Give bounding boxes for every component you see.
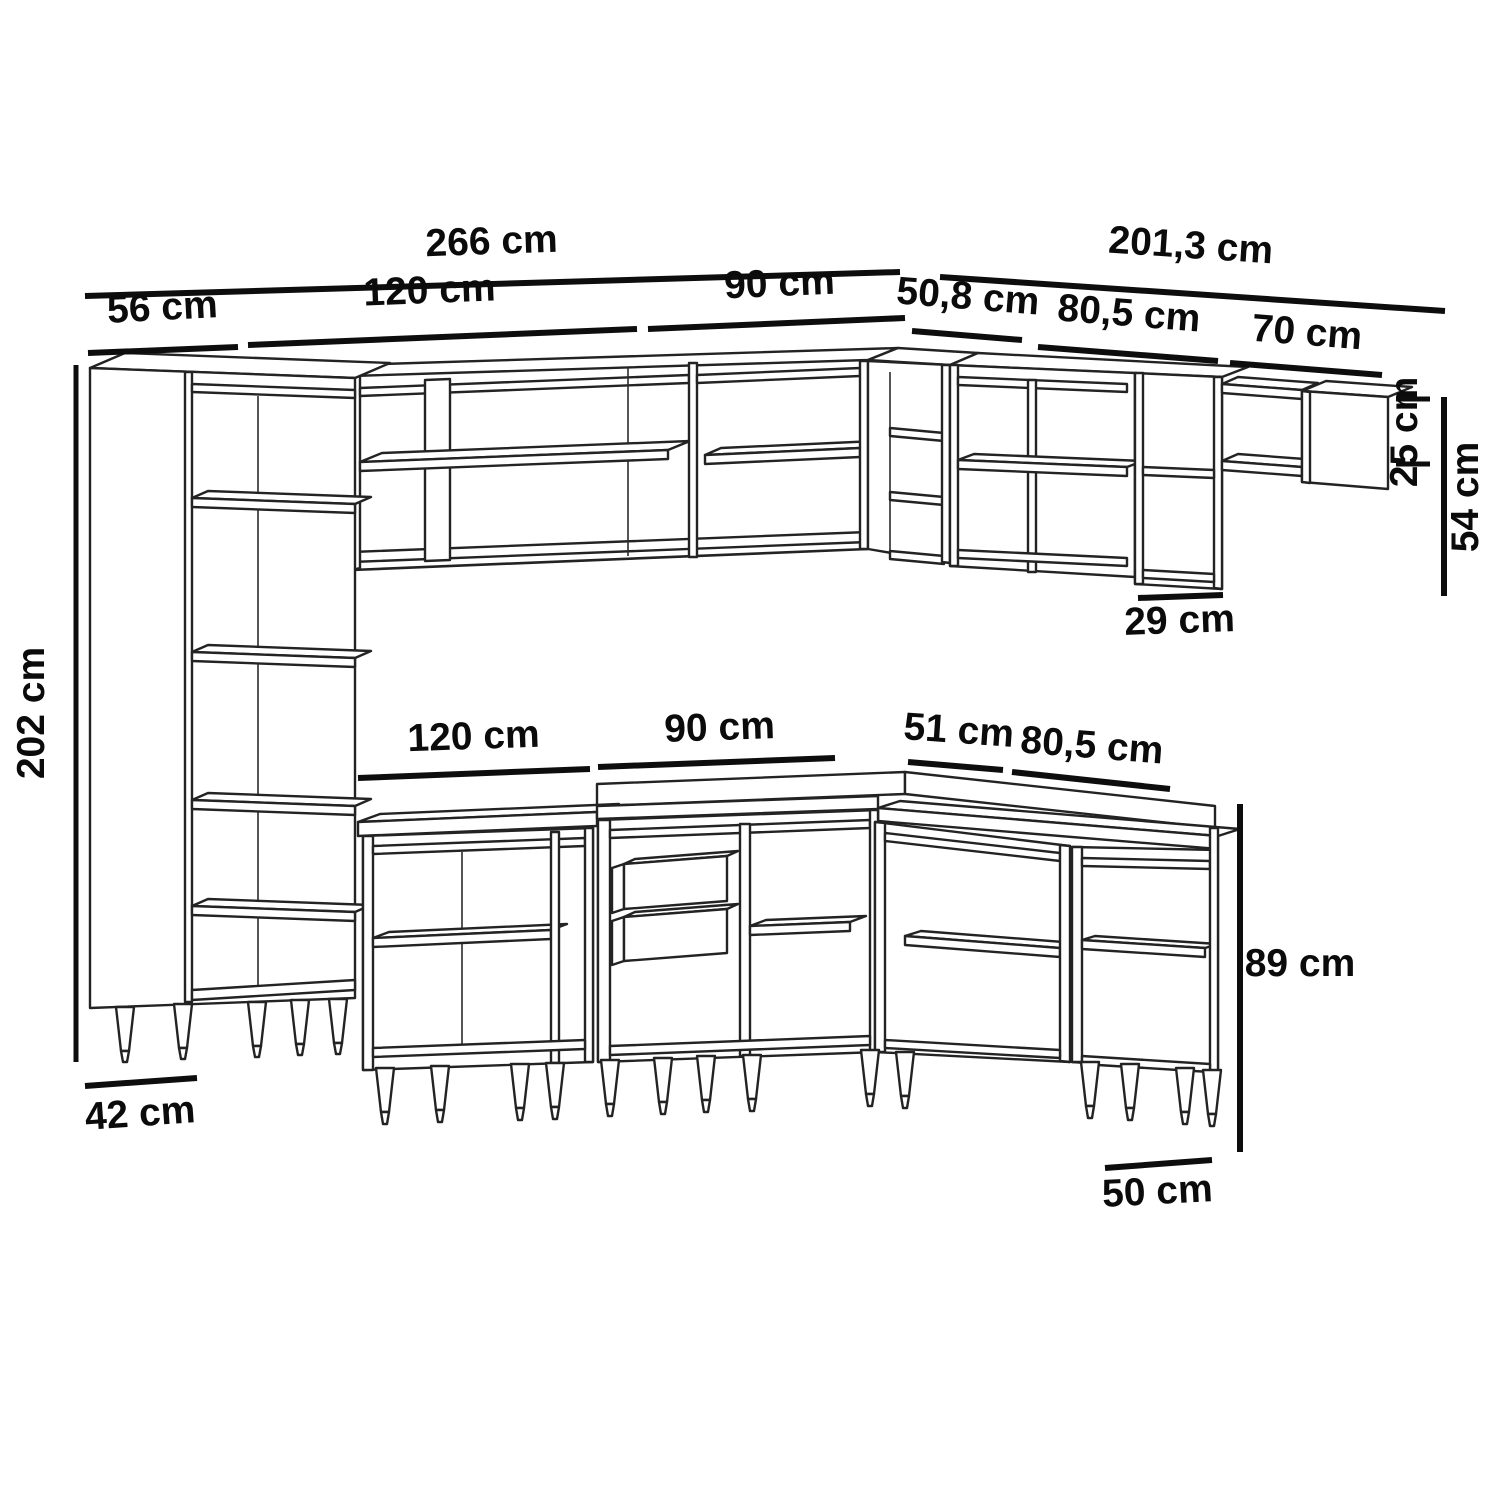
dim-label-54: 54 cm (1444, 442, 1487, 553)
wall-cabinet-90-top-strip (697, 368, 860, 383)
dim-line-50 (1105, 1160, 1212, 1168)
dim-label-70: 70 cm (1250, 307, 1364, 359)
diagram-canvas: 266 cm 56 cm 120 cm 90 cm 201,3 cm 50,8 … (0, 0, 1500, 1500)
wall-cabinet-120-top-strip (360, 375, 689, 396)
base-805-left-edge (1072, 847, 1082, 1062)
dim-label-90-mid: 90 cm (664, 704, 776, 751)
dim-label-42: 42 cm (83, 1088, 196, 1139)
dim-line-90-mid (598, 758, 835, 767)
wall-cabinet-29-front (1135, 373, 1222, 589)
dim-line-70 (1230, 363, 1382, 375)
wall-cabinet-120-divider (425, 379, 450, 561)
base-120-left-edge (363, 836, 373, 1070)
wall-corner-front (868, 361, 950, 563)
dim-line-90-top (648, 318, 905, 329)
base-120-divider (551, 832, 559, 1063)
dim-label-25: 25 cm (1383, 377, 1426, 488)
drawer-2-side (612, 917, 624, 965)
wall-cabinet-29-left-edge (1135, 373, 1143, 584)
dim-line-56 (88, 347, 238, 353)
base-51-right-edge (1060, 845, 1070, 1062)
base-cabinet-90 (598, 810, 878, 1062)
base-cabinet-120 (363, 828, 593, 1070)
base-cabinet-corner-51 (875, 822, 1076, 1062)
open-shelf-70-endbox-front (1302, 391, 1388, 489)
drawer-2-front (624, 909, 727, 961)
dim-line-42 (85, 1078, 197, 1086)
dim-label-508: 50,8 cm (895, 269, 1041, 323)
wall-cabinet-805-divider (1028, 380, 1036, 572)
dim-label-51: 51 cm (902, 705, 1015, 756)
dim-label-90-top: 90 cm (723, 260, 835, 308)
open-shelf-70-endbox-edge (1302, 391, 1310, 483)
base-90-left-edge (598, 820, 610, 1062)
drawer-1-front (624, 856, 727, 909)
dim-label-120-top: 120 cm (363, 266, 497, 314)
wall-cabinet-120-right-edge (689, 363, 697, 557)
drawer-1-side (612, 864, 624, 913)
dim-line-120-top (248, 329, 637, 345)
base-805-right-edge (1210, 828, 1218, 1072)
dim-label-266: 266 cm (425, 218, 559, 266)
dim-label-56: 56 cm (106, 283, 219, 332)
wall-cabinets-left-run (352, 348, 898, 570)
dim-label-120-mid: 120 cm (407, 713, 541, 761)
kitchen-cabinet-dimension-diagram: 266 cm 56 cm 120 cm 90 cm 201,3 cm 50,8 … (0, 0, 1500, 1500)
dim-label-805-mid: 80,5 cm (1019, 718, 1165, 772)
wall-cabinet-29-shelf (1143, 467, 1214, 478)
dim-label-89: 89 cm (1245, 942, 1356, 985)
dim-line-51 (908, 762, 1003, 770)
tall-pantry-cabinet (90, 353, 390, 1062)
dim-label-29: 29 cm (1124, 597, 1236, 644)
wall-cabinets-right-run (950, 353, 1412, 589)
base-51-left-edge (875, 822, 885, 1052)
dim-label-202: 202 cm (10, 647, 53, 779)
base-120-right-edge (585, 828, 593, 1062)
dim-line-120-mid (358, 769, 590, 778)
base-90-divider (740, 824, 750, 1056)
tall-cabinet-legs (116, 999, 347, 1062)
wall-cabinet-29-right-edge (1214, 377, 1222, 589)
base-cabinets (358, 772, 1240, 1126)
dim-line-508 (912, 331, 1022, 340)
base-cabinet-805 (1072, 828, 1218, 1072)
dim-label-2013: 201,3 cm (1107, 219, 1274, 273)
dim-label-50: 50 cm (1101, 1167, 1214, 1216)
base-805-top-strip (1082, 858, 1210, 869)
base-805-front (1072, 847, 1218, 1072)
